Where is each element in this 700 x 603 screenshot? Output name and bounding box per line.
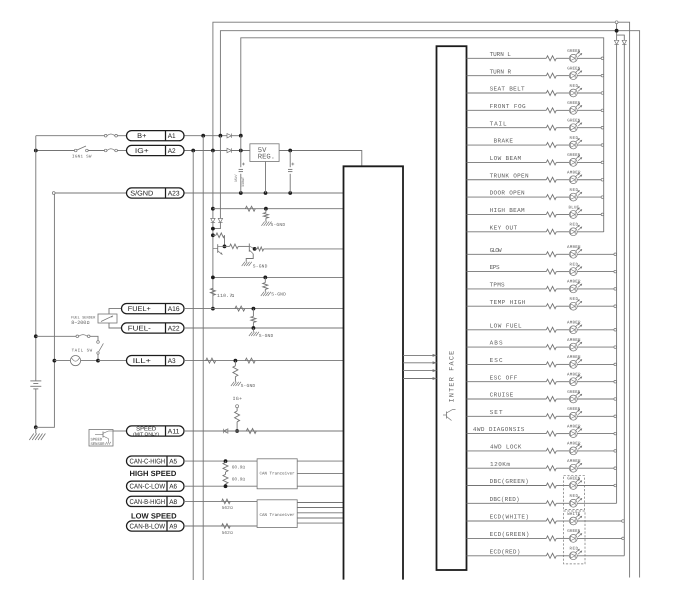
svg-text:60.9: 60.9 <box>232 477 243 482</box>
svg-text:A5: A5 <box>169 459 177 466</box>
svg-text:AMBER: AMBER <box>567 171 581 176</box>
svg-text:BRAKE: BRAKE <box>494 138 514 145</box>
svg-text:GLOW: GLOW <box>490 247 502 254</box>
svg-text:110.7: 110.7 <box>217 293 232 299</box>
svg-text:CAN-C-HIGH: CAN-C-HIGH <box>130 459 166 466</box>
svg-text:HIGH SPEED: HIGH SPEED <box>130 469 177 478</box>
svg-text:CRUISE: CRUISE <box>490 392 514 399</box>
svg-text:DOOR OPEN: DOOR OPEN <box>490 190 525 197</box>
svg-text:SET: SET <box>490 409 503 416</box>
svg-text:TAIL SW: TAIL SW <box>72 348 93 353</box>
svg-text:ESC: ESC <box>490 357 503 364</box>
svg-text:GREEN: GREEN <box>567 153 580 158</box>
svg-text:DBC(GREEN): DBC(GREEN) <box>490 478 529 485</box>
svg-text:AMBER: AMBER <box>567 373 581 378</box>
svg-text:A9: A9 <box>169 523 177 530</box>
svg-text:INTER FACE: INTER FACE <box>449 350 457 403</box>
svg-text:EPS: EPS <box>490 264 500 271</box>
svg-text:WHITE: WHITE <box>567 512 580 517</box>
svg-text:562: 562 <box>222 531 230 536</box>
svg-text:A16: A16 <box>168 306 180 313</box>
svg-text:LOW FUEL: LOW FUEL <box>490 322 522 329</box>
svg-text:SPEED: SPEED <box>91 437 103 442</box>
svg-text:AMBER: AMBER <box>567 442 581 447</box>
svg-text:A11: A11 <box>168 428 180 435</box>
svg-text:4WD LOCK: 4WD LOCK <box>490 444 522 451</box>
svg-text:S-GND: S-GND <box>259 333 274 339</box>
svg-text:GREEN: GREEN <box>567 529 580 534</box>
svg-text:S/GND: S/GND <box>130 189 153 197</box>
svg-text:RED: RED <box>570 136 579 141</box>
svg-text:Ω: Ω <box>232 294 235 299</box>
svg-text:B+: B+ <box>137 133 146 140</box>
svg-text:A8: A8 <box>169 499 177 506</box>
svg-text:SEAT BELT: SEAT BELT <box>490 86 525 93</box>
svg-text:TAIL: TAIL <box>490 120 507 127</box>
svg-text:CAN-B-LOW: CAN-B-LOW <box>130 523 166 530</box>
svg-text:AMBER: AMBER <box>567 424 581 429</box>
svg-text:TEMP HIGH: TEMP HIGH <box>490 299 526 306</box>
svg-text:ECD(RED): ECD(RED) <box>490 548 521 555</box>
svg-text:RED: RED <box>570 223 579 228</box>
svg-text:A3: A3 <box>168 358 176 365</box>
svg-text:S-GND: S-GND <box>253 263 268 269</box>
svg-text:BLUE: BLUE <box>569 205 580 210</box>
svg-text:S-GND: S-GND <box>241 383 256 389</box>
svg-text:ABS: ABS <box>490 340 503 347</box>
svg-text:(M/T ONLY): (M/T ONLY) <box>133 431 160 436</box>
svg-text:AMBER: AMBER <box>567 355 581 360</box>
svg-text:FUEL+: FUEL+ <box>128 306 151 313</box>
svg-text:ILL+: ILL+ <box>133 358 151 365</box>
svg-text:A23: A23 <box>168 190 180 197</box>
svg-text:AMBER: AMBER <box>567 338 581 343</box>
svg-text:TURN R: TURN R <box>490 68 512 75</box>
svg-text:A22: A22 <box>168 325 180 332</box>
svg-text:562: 562 <box>222 506 230 511</box>
svg-text:IGN1 SW: IGN1 SW <box>72 155 92 160</box>
svg-text:TRUNK OPEN: TRUNK OPEN <box>490 172 529 179</box>
svg-text:TURN L: TURN L <box>490 51 512 58</box>
svg-text:HIGH BEAM: HIGH BEAM <box>490 207 525 214</box>
svg-text:60.9: 60.9 <box>232 466 243 471</box>
svg-text:A1: A1 <box>168 133 176 140</box>
svg-text:GREEN: GREEN <box>567 476 580 481</box>
svg-text:35V/: 35V/ <box>234 174 239 182</box>
svg-text:GREEN: GREEN <box>567 49 580 54</box>
svg-text:KEY OUT: KEY OUT <box>490 224 518 231</box>
svg-text:AMBER: AMBER <box>567 321 581 326</box>
svg-text:AMBER: AMBER <box>567 280 581 285</box>
svg-text:330uF: 330uF <box>241 177 246 187</box>
svg-text:LOW BEAM: LOW BEAM <box>490 155 522 162</box>
svg-text:REG.: REG. <box>258 154 275 162</box>
svg-text:120Km: 120Km <box>490 461 510 468</box>
svg-text:FRONT FOG: FRONT FOG <box>490 103 526 110</box>
svg-text:8~200: 8~200 <box>71 320 86 326</box>
svg-text:IG+: IG+ <box>135 148 149 155</box>
svg-text:A2: A2 <box>168 148 176 155</box>
svg-text:AMBER: AMBER <box>567 459 581 464</box>
svg-text:GREEN: GREEN <box>567 119 580 124</box>
svg-text:RED: RED <box>570 297 579 302</box>
svg-text:LOW SPEED: LOW SPEED <box>131 511 177 520</box>
svg-text:CAN-B-HIGH: CAN-B-HIGH <box>130 499 166 506</box>
svg-text:RED: RED <box>570 188 579 193</box>
svg-text:TPMS: TPMS <box>490 282 505 289</box>
svg-text:CAN-C-LOW: CAN-C-LOW <box>130 484 166 491</box>
svg-text:IG+: IG+ <box>233 396 243 402</box>
svg-text:S-GND: S-GND <box>271 222 286 228</box>
svg-text:GREEN: GREEN <box>567 66 580 71</box>
svg-text:Ω: Ω <box>87 320 90 326</box>
svg-text:ESC OFF: ESC OFF <box>490 374 518 381</box>
svg-text:AMBER: AMBER <box>567 245 581 250</box>
svg-text:FUEL-: FUEL- <box>128 325 152 332</box>
svg-text:RED: RED <box>570 494 579 499</box>
svg-text:GREEN: GREEN <box>567 101 580 106</box>
svg-text:S-GND: S-GND <box>271 292 286 298</box>
svg-text:RED: RED <box>570 262 579 267</box>
svg-text:DBC(RED): DBC(RED) <box>490 496 520 503</box>
svg-text:ECD(WHITE): ECD(WHITE) <box>490 514 529 521</box>
svg-text:GREEN: GREEN <box>567 390 580 395</box>
svg-text:SENSOR: SENSOR <box>91 442 106 447</box>
svg-text:ECD(GREEN): ECD(GREEN) <box>490 531 530 538</box>
svg-text:RED: RED <box>570 547 579 552</box>
svg-text:A6: A6 <box>169 484 177 491</box>
svg-text:RED: RED <box>570 84 579 89</box>
svg-text:4WD DIAGONSIS: 4WD DIAGONSIS <box>473 426 525 433</box>
svg-text:GREEN: GREEN <box>567 407 580 412</box>
